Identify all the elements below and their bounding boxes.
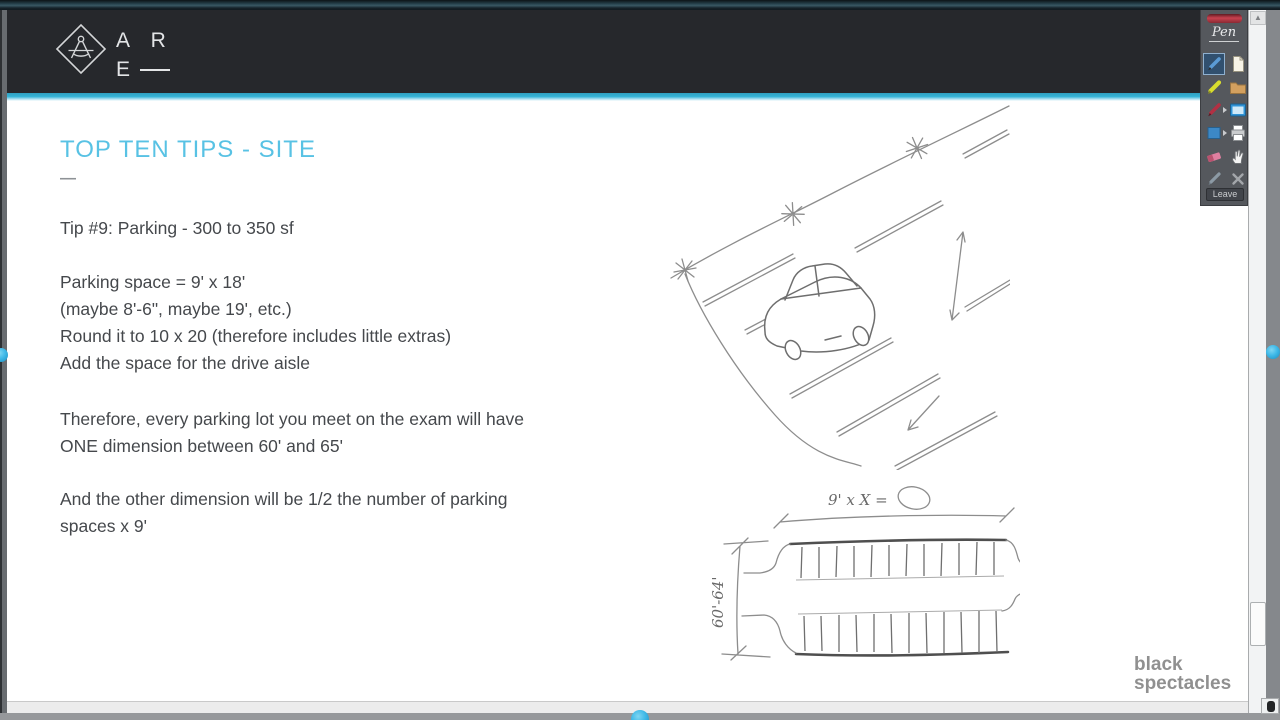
print-icon (1228, 123, 1248, 143)
body-line: Parking space = 9' x 18' (60, 269, 710, 296)
watermark-line2: spectacles (1134, 674, 1231, 693)
lower-stall-row (742, 591, 1020, 655)
print-button[interactable] (1228, 123, 1248, 143)
scroll-up-button[interactable]: ▲ (1250, 11, 1266, 25)
shapes-options-arrow-icon[interactable] (1223, 130, 1227, 136)
folder-icon (1228, 77, 1248, 97)
other-dimension-paragraph: And the other dimension will be 1/2 the … (60, 486, 710, 540)
pan-hand-button[interactable] (1228, 146, 1248, 166)
pen-cursor-icon (1267, 701, 1275, 712)
parking-space-paragraph: Parking space = 9' x 18' (maybe 8'-6", m… (60, 269, 710, 377)
circled-area-symbol (896, 484, 932, 512)
are-logo-line2: E (116, 55, 174, 84)
body-line: Add the space for the drive aisle (60, 350, 710, 377)
toolbar-handle-bar[interactable] (1207, 14, 1242, 23)
leave-button[interactable]: Leave (1206, 188, 1244, 201)
car-sketch (765, 264, 875, 362)
logo-dash (140, 69, 170, 71)
faded-pen-tool-button[interactable] (1204, 169, 1224, 189)
are-logo-icon (52, 20, 110, 78)
slide-title: TOP TEN TIPS - SITE (60, 136, 316, 164)
body-line: Tip #9: Parking - 300 to 350 sf (60, 215, 710, 242)
clear-x-button[interactable] (1228, 169, 1248, 189)
annotation-toolbar: Pen (1200, 10, 1248, 206)
red-pen-tool-button[interactable] (1204, 100, 1224, 120)
pen-tool-icon (1204, 54, 1224, 74)
body-line: And the other dimension will be 1/2 the … (60, 486, 710, 513)
body-line: Therefore, every parking lot you meet on… (60, 406, 710, 433)
dimension-rule-paragraph: Therefore, every parking lot you meet on… (60, 406, 710, 460)
parking-lot-sketch (665, 100, 1010, 470)
folder-button[interactable] (1228, 77, 1248, 97)
new-page-button[interactable] (1228, 54, 1248, 74)
eraser-tool-icon (1204, 146, 1224, 166)
highlighter-tool-icon (1204, 77, 1224, 97)
upper-stall-row (744, 540, 1020, 580)
are-logo-text: A R E (116, 26, 174, 84)
bay-depth-label: 60'-64' (709, 577, 727, 629)
bay-width-label: 9' x X = (828, 491, 888, 509)
right-window-margin (1266, 10, 1280, 713)
are-logo-line1: A R (116, 26, 174, 55)
body-line: ONE dimension between 60' and 65' (60, 433, 710, 460)
pen-tool-button[interactable] (1204, 54, 1224, 74)
right-edge-handle[interactable] (1266, 345, 1280, 359)
new-page-icon (1228, 54, 1248, 74)
window-top-border (0, 0, 1280, 10)
eraser-tool-button[interactable] (1204, 146, 1224, 166)
drive-aisle-arrow (908, 396, 939, 430)
survey-star-marker (780, 201, 806, 227)
survey-star-marker (905, 136, 930, 161)
tip-paragraph: Tip #9: Parking - 300 to 350 sf (60, 215, 710, 242)
clear-x-icon (1228, 169, 1248, 189)
scrollbar-thumb[interactable] (1250, 602, 1266, 646)
body-line: (maybe 8'-6", maybe 19', etc.) (60, 296, 710, 323)
black-spectacles-logo: black spectacles (1134, 655, 1231, 693)
shapes-tool-icon (1204, 123, 1224, 143)
body-line: Round it to 10 x 20 (therefore includes … (60, 323, 710, 350)
faded-pen-tool-icon (1204, 169, 1224, 189)
side-dimension: 60'-64' (709, 538, 770, 660)
highlighter-tool-button[interactable] (1204, 77, 1224, 97)
window-select-icon (1228, 100, 1248, 120)
slide-header-bar (7, 10, 1266, 93)
presentation-window: A R E TOP TEN TIPS - SITE — Tip #9: Park… (0, 0, 1280, 720)
body-line: spaces x 9' (60, 513, 710, 540)
header-accent-band (7, 93, 1248, 101)
watermark-line1: black (1134, 655, 1231, 674)
vertical-scrollbar[interactable]: ▲ (1248, 10, 1266, 713)
window-select-button[interactable] (1228, 100, 1248, 120)
top-dimension: 9' x X = (774, 484, 1014, 528)
pen-options-arrow-icon[interactable] (1223, 107, 1227, 113)
red-pen-tool-icon (1204, 100, 1224, 120)
slide-subtitle-dash: — (60, 170, 76, 188)
shapes-tool-button[interactable] (1204, 123, 1224, 143)
toolbar-brand-label: Pen (1201, 25, 1247, 40)
pan-hand-icon (1228, 146, 1248, 166)
window-bottom-bar (7, 701, 1248, 713)
parking-bay-diagram: 9' x X = 60'-64' (698, 472, 1020, 672)
dimension-arrow (950, 232, 965, 320)
scrollbar-corner-button[interactable] (1261, 698, 1279, 714)
